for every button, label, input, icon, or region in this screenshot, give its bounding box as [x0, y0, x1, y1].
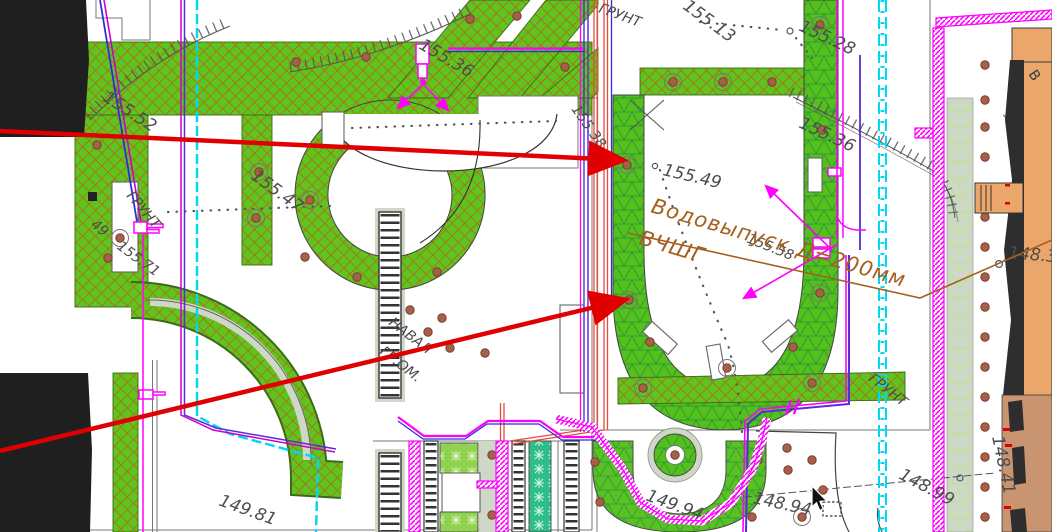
- stair-ladder: [512, 441, 525, 532]
- stair-ladder: [424, 441, 438, 532]
- drawing-canvas[interactable]: 155.52 ГРУНТ 155.36 ГРУНТ 155.13 155.28 …: [0, 0, 1052, 532]
- stair-ladder: [379, 453, 401, 532]
- building-connector: [975, 183, 1023, 213]
- stair-ladder: [564, 441, 579, 532]
